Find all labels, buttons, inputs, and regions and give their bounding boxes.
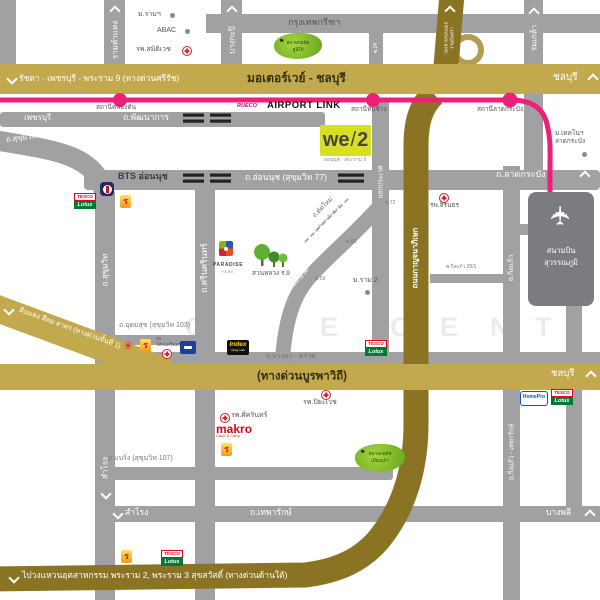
- index-living-mall-logo: Index living mall: [227, 340, 249, 355]
- road-label-on-nut: ถ.อ่อนนุช (สุขุมวิท 77): [245, 173, 327, 183]
- tesco-lotus-logo: TESCO Lotus: [551, 389, 573, 405]
- road-label-soi-59: ซ.59: [315, 277, 325, 283]
- landmark-label-samitivej-hospital: รพ.สมิติเวช: [136, 46, 171, 54]
- bts-logo: [100, 182, 114, 196]
- road-label-kanchanaphisek: ถนนกาญจนาภิเษก: [412, 228, 421, 289]
- landmark-label-thai-nakarin-hospital: รพ. ไทยนครินทร์: [156, 336, 181, 347]
- paradise-park-sublabel: PARK: [221, 270, 234, 274]
- landmark-label-line: ลาดกระบัง: [555, 138, 585, 145]
- hospital-cross-icon: [182, 46, 192, 56]
- station-label-khlong-tan: สถานีคลองตัน: [96, 104, 136, 111]
- road-label-king-kaeo-thepharak: ถ.กิ่งแก้ว - เทพารักษ์: [508, 424, 515, 481]
- tesco-logo-text: TESCO: [365, 340, 387, 348]
- tesco-logo-text: TESCO: [161, 550, 183, 558]
- road-label-thepharak: ถ.เทพารักษ์: [250, 508, 292, 518]
- road-label-lat-krabang: ถ.ลาดกระบัง: [496, 169, 546, 179]
- road-label-bangna-trat: ถ.บางนา - ตราด: [266, 353, 316, 361]
- golf-flag-icon: ⚑: [279, 38, 284, 45]
- road-label-phatthanakan: ถ.พัฒนาการ: [123, 113, 169, 123]
- golf-flag-icon: ⚑: [360, 449, 365, 456]
- expressway-label-motorway: มอเตอร์เวย์ - ชลบุรี: [247, 72, 346, 86]
- road-label-soi-24: ซ.24: [374, 43, 380, 53]
- landmark-logo: ร: [221, 443, 232, 456]
- lotus-logo-text: Lotus: [551, 397, 573, 405]
- landmark-label-line: ไทยนครินทร์: [156, 342, 181, 347]
- road-label-samrong-vertical: สำโรง: [100, 457, 109, 479]
- lotus-logo-text: Lotus: [74, 201, 96, 209]
- landmark-label-kmitl: ม.เทคโนฯ ลาดกระบัง: [555, 130, 585, 145]
- index-logo-subtext: living mall: [227, 349, 249, 352]
- makro-logo: makro Cash & Carry: [216, 424, 252, 439]
- dot-marker: [582, 152, 587, 157]
- landmark-label-sikarin-hospital: รพ.ศิครินทร์: [231, 412, 267, 420]
- road-label-phetchaburi: เพชรบุรี: [24, 113, 51, 122]
- trees-icon: [253, 243, 289, 269]
- tesco-logo-text: TESCO: [74, 193, 96, 201]
- station-label-thap-chang: สถานีทับช้าง: [351, 106, 387, 113]
- hospital-cross-icon: [162, 349, 172, 359]
- starburst-logo: ✳: [123, 339, 133, 353]
- suvarnabhumi-airport-box: ✈ สนามบิน สุวรรณภูมิ: [528, 192, 594, 306]
- road-label-soi-72: ซ.72: [385, 201, 395, 207]
- road-label-srinagarindra: ถ.ศรีนครินทร์: [200, 243, 210, 293]
- golf-course-label: ยูนิโก้: [293, 47, 304, 52]
- road-label-rom-klao: ร่มเกล้า: [529, 25, 538, 52]
- landmark-label-piyavate-hospital: รพ.ปิยะเวช: [303, 399, 337, 407]
- road-label-ramkhamhaeng: รามคำแหง: [110, 21, 119, 59]
- landmark-logo: ร: [140, 339, 151, 352]
- road-label-line: รามอินทรา: [449, 27, 454, 49]
- we2-subtitle: อ่อนนุช - พระราม 9: [324, 158, 366, 164]
- expressway-label-srirat: รัชดา - เพชรบุรี - พระราม 9 (ทางด่วนศรีร…: [19, 74, 179, 84]
- we2-logo-number: 2: [357, 129, 368, 151]
- tesco-lotus-logo: TESCO Lotus: [365, 340, 387, 356]
- golf-course-label: เมืองแก้ว: [371, 458, 389, 463]
- airport-link-brand-logo: RUECO: [237, 103, 257, 109]
- landmark-label-line: รพ.: [156, 336, 163, 341]
- paradise-park-logo: [219, 241, 233, 256]
- homepro-logo: HomePro: [520, 391, 548, 406]
- road-label-bangkapi: บางกะปิ: [227, 26, 236, 54]
- road-label-line: วงแหวนรอบนอก: [444, 22, 449, 55]
- expressway-label-chonburi-bottom: ชลบุรี: [551, 369, 574, 380]
- blue-bank-logo: [180, 341, 196, 354]
- road-label-samrong-direction: สำโรง: [125, 508, 148, 518]
- tesco-lotus-logo: TESCO Lotus: [161, 550, 183, 566]
- landmark-label-ram2-univ: ม.ราม 2: [353, 277, 378, 285]
- landmark-label-line: ม.เทคโนฯ: [555, 130, 584, 137]
- road-label-outer-ring-ramindra: วงแหวนรอบนอก รามอินทรา: [444, 22, 455, 55]
- airplane-icon: ✈: [546, 183, 577, 249]
- tesco-logo-text: TESCO: [551, 389, 573, 397]
- road-label-udom-suk: ถ.อุดมสุข (สุขุมวิท 103): [119, 322, 190, 330]
- road-label-sukhumvit-vertical: ถ.สุขุมวิท: [100, 254, 109, 286]
- airport-label: สุวรรณภูมิ: [528, 257, 594, 269]
- golf-course-label: สนามกอล์ฟ: [369, 451, 392, 456]
- road-label-king-kaeo: ถ.กิ่งแก้ว: [507, 255, 515, 282]
- bts-on-nut-label: BTS อ่อนนุช: [118, 171, 168, 181]
- we2-logo-text: we: [323, 129, 350, 151]
- we2-logo: we/2: [320, 125, 371, 156]
- landmark-label-abac: ABAC: [157, 27, 176, 35]
- golf-course-label: สนามกอล์ฟ: [287, 40, 310, 45]
- station-label-lat-krabang: สถานีลาดกระบัง: [477, 106, 523, 113]
- road-label-krungthep-kreetha: กรุงเทพกรีฑา: [288, 17, 340, 27]
- landmark-label-suan-luang: สวนหลวง ร.9: [252, 270, 290, 277]
- we2-logo-slash: /: [350, 129, 358, 151]
- dot-marker: [365, 290, 370, 295]
- road-label-bearing: ถ.แบริ่ง (สุขุมวิท 107): [108, 455, 173, 463]
- expressway-label-burapha: (ทางด่วนบูรพาวิถี): [257, 370, 347, 383]
- airport-link-label: AIRPORT LINK: [267, 101, 341, 112]
- road-label-bang-phli: บางพลี: [546, 508, 571, 518]
- map-canvas: A O E C E N T: [0, 0, 600, 600]
- homepro-logo-text: HomePro: [523, 394, 545, 400]
- lotus-logo-text: Lotus: [161, 558, 183, 566]
- tesco-lotus-logo: TESCO Lotus: [74, 193, 96, 209]
- dot-marker: [185, 29, 190, 34]
- road-label-yaek-prawet: แยกประเวศ: [377, 165, 384, 198]
- landmark-logo: ร: [120, 195, 131, 208]
- road-network: [0, 0, 600, 600]
- road-label-soi-62: ซ.62: [346, 240, 356, 246]
- expressway-label-industrial-ring: ไปวงแหวนอุตสาหกรรม พระราม 2, พระราม 3 สุ…: [22, 571, 287, 581]
- landmark-label-ramkhamhaeng-univ: ม.รามฯ: [138, 11, 161, 19]
- road-label-soi-king-kaeo: ซ.กิ่งแก้ว 25/1: [446, 265, 476, 271]
- paradise-park-label: PARADISE: [213, 263, 243, 269]
- dot-marker: [170, 13, 175, 18]
- landmark-label-sirindhorn-hospital: รพ.สิรินธร: [430, 202, 459, 209]
- expressway-label-chonburi-top: ชลบุรี: [553, 72, 578, 84]
- landmark-logo: ร: [121, 550, 132, 563]
- station-dot-thap-chang: [366, 93, 380, 107]
- lotus-logo-text: Lotus: [365, 348, 387, 356]
